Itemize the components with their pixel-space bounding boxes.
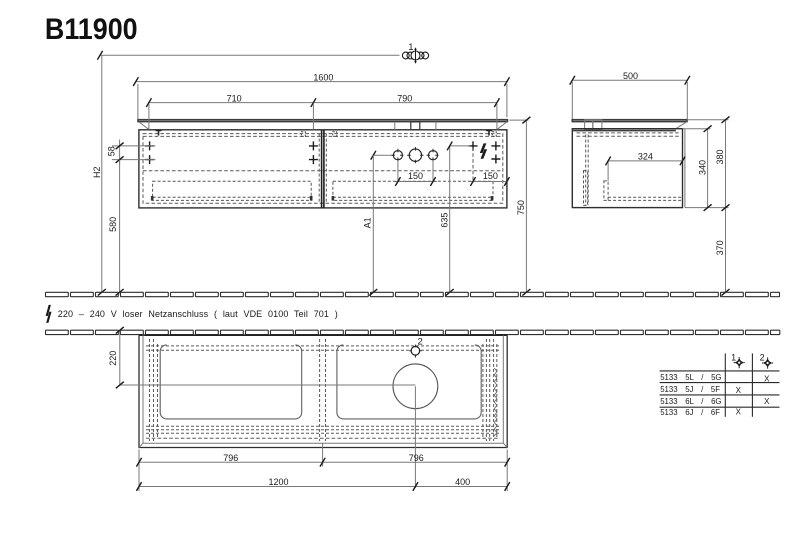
- svg-text:H2: H2: [92, 166, 102, 178]
- svg-text:58: 58: [107, 146, 117, 156]
- svg-text:220 – 240 V loser Netzanschlus: 220 – 240 V loser Netzanschluss ( laut V…: [58, 309, 338, 319]
- svg-text:X: X: [736, 407, 742, 416]
- svg-text:150: 150: [408, 171, 423, 181]
- svg-text:324: 324: [638, 152, 653, 162]
- svg-text:370: 370: [715, 240, 725, 255]
- svg-text:150: 150: [483, 171, 498, 181]
- svg-text:5133 5L / 5G: 5133 5L / 5G: [660, 373, 721, 382]
- svg-text:X: X: [736, 386, 742, 395]
- svg-text:340: 340: [698, 160, 708, 175]
- svg-text:750: 750: [516, 200, 526, 215]
- svg-text:580: 580: [108, 217, 118, 232]
- svg-text:380: 380: [715, 149, 725, 164]
- svg-text:710: 710: [227, 93, 242, 103]
- svg-text:500: 500: [623, 71, 638, 81]
- svg-text:796: 796: [409, 453, 424, 463]
- svg-text:A1: A1: [363, 217, 373, 228]
- svg-text:5133 6J / 6F: 5133 6J / 6F: [660, 408, 720, 417]
- svg-text:220: 220: [108, 351, 118, 366]
- svg-text:1200: 1200: [268, 477, 288, 487]
- svg-text:2: 2: [418, 336, 423, 347]
- svg-text:X: X: [764, 374, 770, 383]
- svg-text:5133 5J / 5F: 5133 5J / 5F: [660, 385, 720, 394]
- svg-text:790: 790: [397, 93, 412, 103]
- svg-text:B11900: B11900: [45, 12, 138, 45]
- svg-text:635: 635: [440, 213, 450, 228]
- svg-text:X: X: [764, 397, 770, 406]
- svg-text:5133 6L / 6G: 5133 6L / 6G: [660, 397, 721, 406]
- svg-text:1: 1: [731, 352, 736, 362]
- svg-text:1600: 1600: [313, 72, 333, 82]
- svg-text:796: 796: [223, 453, 238, 463]
- svg-text:2: 2: [760, 352, 765, 362]
- svg-text:400: 400: [455, 477, 470, 487]
